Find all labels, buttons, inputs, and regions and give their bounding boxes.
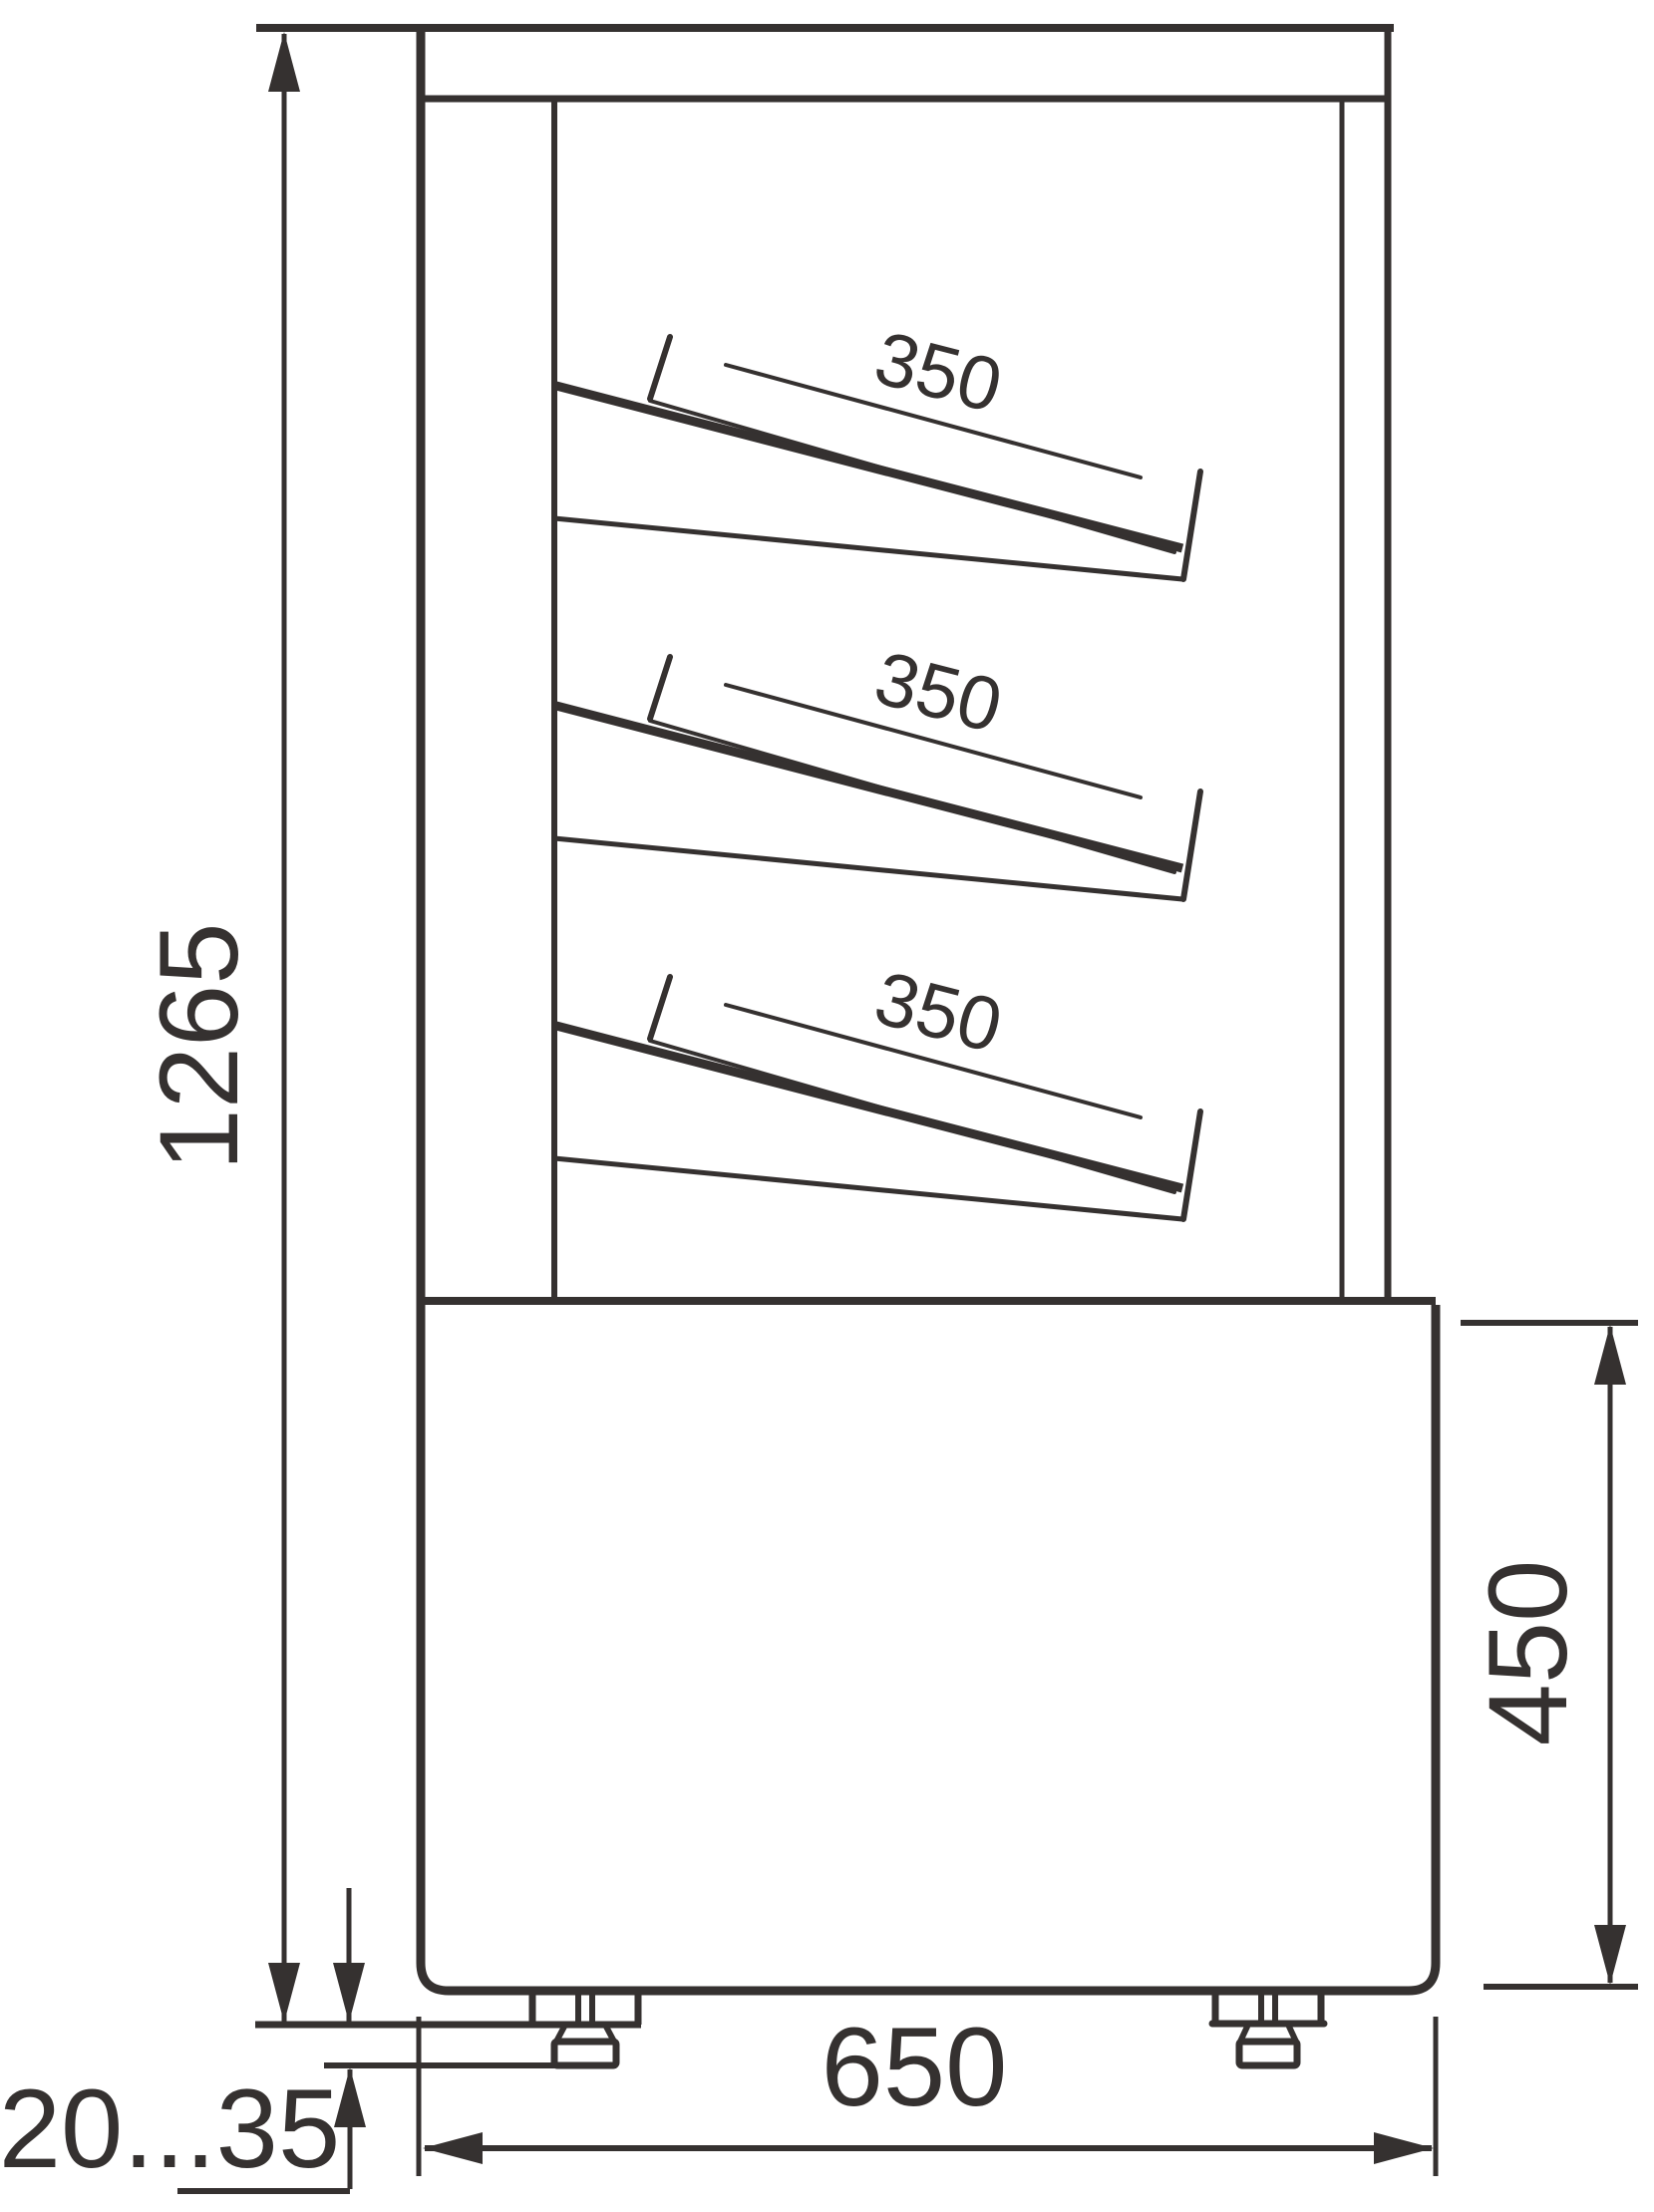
foot-adjustment-label: 20...35 bbox=[0, 2073, 340, 2185]
base-depth-label: 650 bbox=[822, 2012, 1008, 2123]
overall-height-label: 1265 bbox=[144, 922, 255, 1170]
dimension-overall-height bbox=[268, 32, 300, 2023]
foot-right bbox=[1212, 1991, 1324, 2065]
base-height-label: 450 bbox=[1473, 1560, 1584, 1746]
technical-drawing-canvas: 1265 350 350 350 450 650 20...35 bbox=[0, 0, 1654, 2212]
cabinet-structure bbox=[256, 24, 1436, 1991]
